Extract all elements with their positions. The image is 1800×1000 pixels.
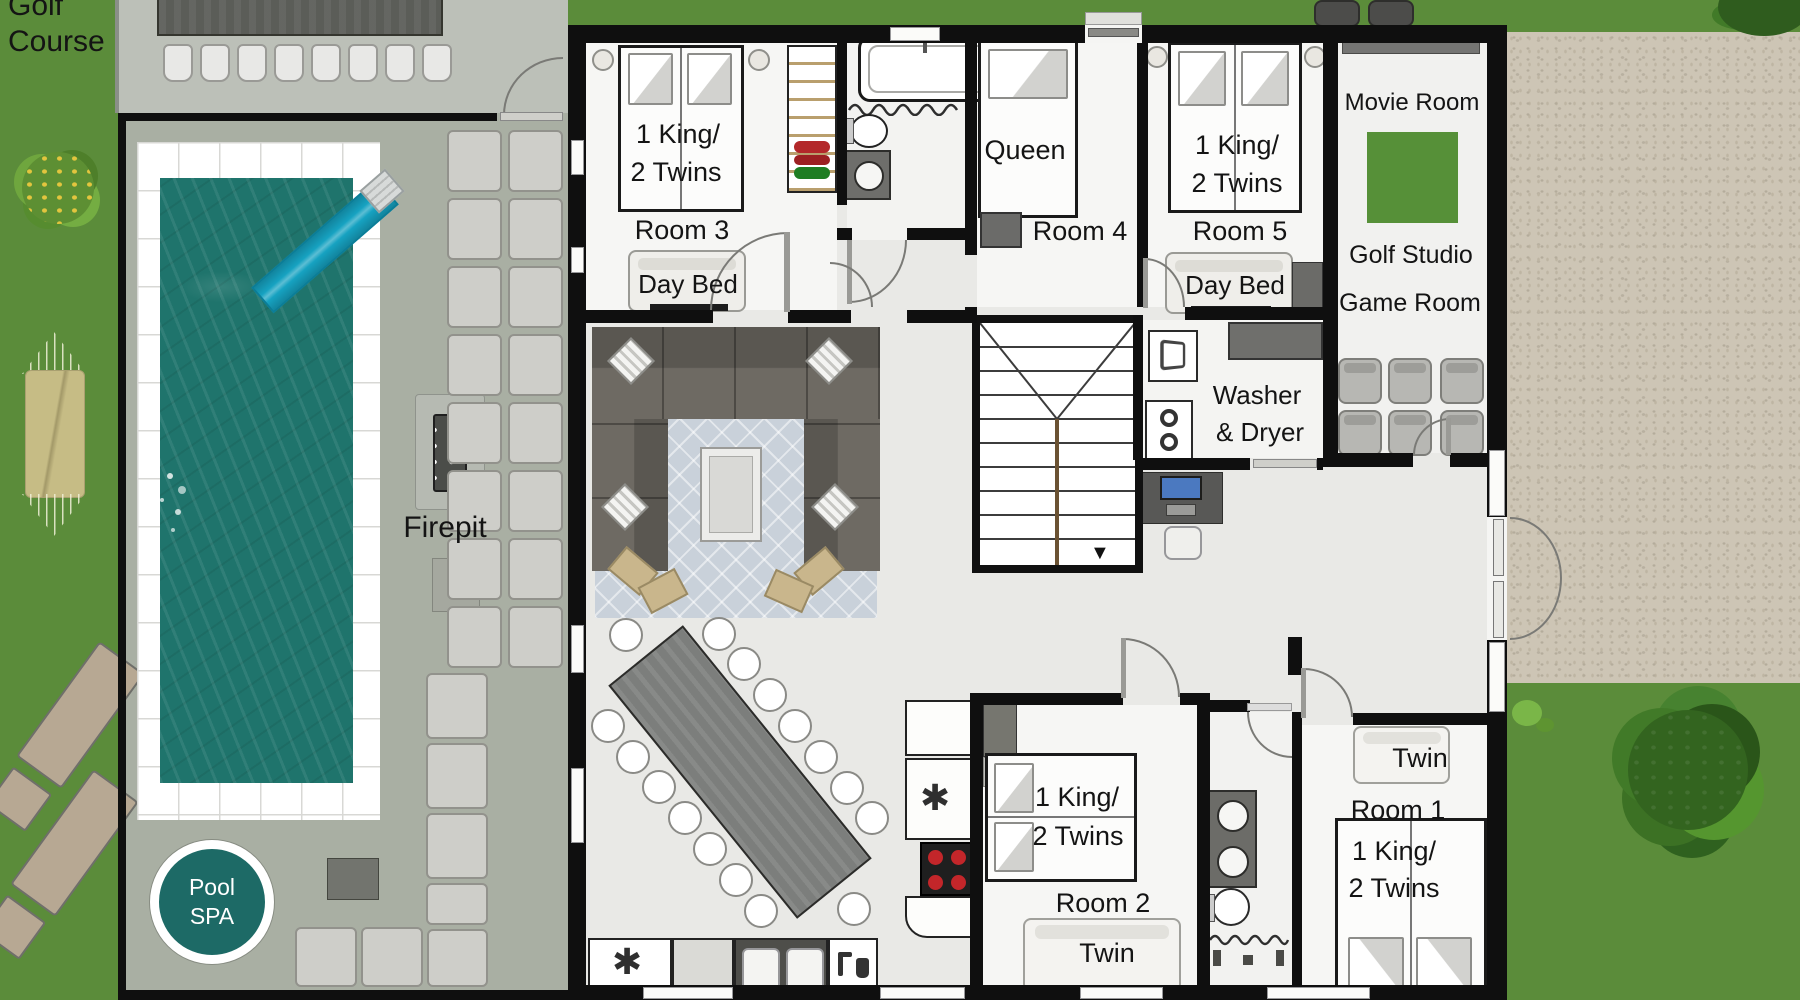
pillow (1348, 937, 1404, 989)
room3-name-label: Room 3 (635, 216, 730, 244)
stove-burner (928, 875, 943, 890)
room5-side-table (1292, 262, 1323, 312)
hall-wall (586, 310, 713, 323)
outdoor-sofa-cushion (427, 929, 488, 987)
pillow (1178, 51, 1226, 106)
window (571, 140, 584, 175)
patio-chair (385, 44, 415, 82)
pool-spa-label-line2: SPA (190, 902, 234, 931)
room2-door (1121, 638, 1126, 698)
stove-burner (951, 850, 966, 865)
room2-bed-label-line2: 2 Twins (1032, 822, 1123, 850)
window (643, 987, 733, 999)
french-door-leaf (1493, 581, 1504, 638)
stairs-down-arrow-icon: ▼ (1090, 542, 1110, 565)
dining-chair (855, 801, 889, 835)
outdoor-sofa-cushion (361, 927, 423, 987)
desk-chair (1164, 526, 1202, 560)
room1-wall-top (1353, 713, 1487, 725)
closet-items-red (794, 155, 830, 165)
laundry-door (1253, 459, 1317, 468)
vent-hood-icon: ✱ (612, 944, 642, 980)
pillow (1416, 937, 1472, 989)
hall-wall (788, 310, 851, 323)
room2-wall-right (1197, 693, 1210, 985)
room5-bed-label-line1: 1 King/ (1195, 131, 1279, 159)
large-tree (1628, 710, 1748, 830)
hammock-net-bottom (22, 494, 86, 536)
coffee-table (700, 447, 762, 542)
room5-daybed-label: Day Bed (1185, 272, 1285, 299)
faucet-icon (838, 954, 843, 976)
dining-chair (719, 863, 753, 897)
bathroom1-wall-bottom (837, 228, 852, 240)
patio-chair (237, 44, 267, 82)
window (1080, 987, 1163, 999)
golf-simulator-green (1367, 132, 1458, 223)
window (1267, 987, 1370, 999)
pillow (628, 53, 673, 105)
dining-chair (642, 770, 676, 804)
media-room-wall-left (1323, 25, 1338, 465)
window (571, 768, 584, 843)
firepit-label: Firepit (403, 512, 486, 544)
toilet (850, 114, 888, 148)
room2-wall-top (970, 693, 1123, 705)
pool-spa-badge: Pool SPA (150, 840, 274, 964)
patio-door (500, 112, 563, 121)
outdoor-coffee-table (327, 858, 379, 900)
kitchen-stove (920, 842, 972, 896)
bathroom1-wall-right (965, 43, 977, 255)
theater-seat (1440, 358, 1484, 404)
bathroom2-wall-top (1210, 700, 1250, 712)
golf-studio-label: Golf Studio (1349, 242, 1473, 268)
window (571, 625, 584, 673)
dining-chair (727, 647, 761, 681)
patio-chair (348, 44, 378, 82)
theater-seat (1338, 358, 1382, 404)
outdoor-sofa-back (508, 334, 563, 396)
room4-bed (978, 40, 1078, 218)
patio-edge-line (115, 0, 119, 113)
theater-seat (1388, 358, 1432, 404)
theater-seat (1338, 410, 1382, 456)
floor-plan: Pool SPA (0, 0, 1800, 1000)
laundry-wall-bottom (1317, 458, 1323, 470)
golf-cart-seat (1368, 0, 1414, 27)
kitchen-upper-cabinet (905, 700, 972, 756)
dining-chair (609, 618, 643, 652)
outdoor-sofa-cushion (447, 334, 502, 396)
room5-wall-bottom (1185, 307, 1323, 320)
laundry-counter (1228, 322, 1323, 360)
stove-burner (951, 875, 966, 890)
room4-bed-label: Queen (984, 136, 1065, 164)
outdoor-sofa-cushion (426, 673, 488, 739)
kitchen-room2-wall (970, 693, 983, 985)
patio-chair (200, 44, 230, 82)
dining-chair (830, 771, 864, 805)
golf-cart-seat (1314, 0, 1360, 27)
spa-jets-bubbles (152, 462, 160, 470)
outdoor-sofa-back (508, 606, 563, 668)
stove-burner (928, 850, 943, 865)
closet-items-red (794, 141, 830, 153)
front-step (1085, 12, 1142, 25)
golf-course-label-line1: Golf (8, 0, 63, 22)
closet-items-green (794, 167, 830, 179)
shower-head-icon (1213, 950, 1221, 966)
golf-course-label-line2: Course (8, 26, 105, 58)
room3-bed-label-line2: 2 Twins (630, 158, 721, 186)
room5-bed-label-line2: 2 Twins (1191, 169, 1282, 197)
room4-name-label: Room 4 (1033, 217, 1128, 245)
laundry-wall-bottom (1135, 458, 1250, 470)
dining-chair (616, 740, 650, 774)
pillow (687, 53, 732, 105)
outdoor-sofa-back (508, 130, 563, 192)
room5-name-label: Room 5 (1193, 217, 1288, 245)
dining-chair (804, 740, 838, 774)
room2-name-label: Room 2 (1056, 889, 1151, 917)
room1-twin-label: Twin (1392, 744, 1448, 772)
room2-bed (985, 753, 1137, 882)
dining-chair (778, 709, 812, 743)
pillow (994, 822, 1034, 872)
soap-jar-icon (856, 958, 869, 978)
laundry-label-line1: Washer (1213, 382, 1302, 409)
window (571, 247, 584, 273)
patio-chair (274, 44, 304, 82)
dining-chair (744, 894, 778, 928)
washer (1148, 330, 1198, 382)
window (1489, 450, 1505, 516)
hammock (8, 330, 100, 535)
dining-chair (668, 801, 702, 835)
outdoor-sofa-cushion (295, 927, 357, 987)
bathroom1-wall-right (965, 307, 977, 323)
computer-monitor (1160, 476, 1202, 500)
pillow (994, 763, 1034, 813)
room4-nightstand (980, 212, 1022, 248)
faucet-icon (838, 952, 852, 957)
house-wall-top (568, 25, 1507, 43)
stairs-laundry-wall (1133, 315, 1143, 460)
outdoor-sofa-cushion (447, 198, 502, 260)
hall-wall (907, 310, 965, 323)
outdoor-sofa-cushion (447, 606, 502, 668)
nightstand (1146, 46, 1168, 68)
window (880, 987, 965, 999)
outdoor-dining-table (157, 0, 443, 36)
staircase (972, 315, 1143, 573)
laundry-label-line2: & Dryer (1216, 419, 1304, 446)
room3-bed-label-line1: 1 King/ (636, 120, 720, 148)
room2-closet (983, 703, 1017, 757)
bathroom2-door (1247, 703, 1292, 711)
room3-closet-rack (787, 45, 837, 193)
shower-control-icon (1243, 955, 1253, 965)
outdoor-sofa-cushion (447, 130, 502, 192)
room2-twin-label: Twin (1079, 939, 1135, 967)
outdoor-sofa-back (508, 470, 563, 532)
toilet-tank (846, 118, 854, 144)
front-door (1088, 28, 1139, 37)
room3-door (784, 232, 790, 312)
dining-chair (591, 709, 625, 743)
deck-wall-left (118, 113, 126, 1000)
outdoor-sofa-cushion (447, 266, 502, 328)
room1-name-label: Room 1 (1351, 796, 1446, 824)
dryer (1145, 400, 1193, 460)
bathroom1-vanity (845, 150, 891, 200)
nightstand (748, 49, 770, 71)
dining-chair (693, 832, 727, 866)
outdoor-sofa-back (508, 266, 563, 328)
desk-keyboard (1166, 504, 1196, 516)
hall-room1-stub (1288, 637, 1302, 675)
room1-door (1301, 668, 1306, 718)
dining-chair (837, 892, 871, 926)
shower-head-icon (1276, 950, 1284, 966)
fridge-star-icon: ✱ (920, 780, 950, 816)
room1-bed-label-line2: 2 Twins (1348, 874, 1439, 902)
patio-chair (311, 44, 341, 82)
media-room-door (1446, 418, 1451, 455)
deck-wall-bottom (118, 990, 568, 1000)
french-door-leaf (1493, 519, 1504, 576)
outdoor-sofa-cushion (426, 813, 488, 879)
media-room-name-label: Movie Room (1345, 90, 1480, 115)
deck-wall-top (118, 113, 497, 121)
game-room-label: Game Room (1339, 290, 1481, 316)
small-tree (22, 152, 94, 224)
patio-chair (422, 44, 452, 82)
pillow (1241, 51, 1289, 106)
pillow (988, 49, 1068, 99)
toilet (1212, 888, 1250, 926)
outdoor-sofa-back (508, 538, 563, 600)
dining-chair (702, 617, 736, 651)
hammock-cloth (25, 370, 85, 498)
room3-closet-wall (837, 43, 847, 205)
small-bush (1512, 700, 1542, 726)
media-room-wall-bottom (1323, 453, 1413, 467)
outdoor-sofa-back (508, 402, 563, 464)
bathroom1-wall-bottom (907, 228, 965, 240)
bathroom2-vanity (1207, 790, 1257, 888)
hammock-net-top (22, 332, 86, 374)
kitchen-corner-counter (905, 896, 972, 938)
outdoor-sofa-back (508, 198, 563, 260)
room1-bed-label-line1: 1 King/ (1352, 837, 1436, 865)
outdoor-sofa-cushion (426, 883, 488, 925)
room2-bed-label-line1: 1 King/ (1035, 783, 1119, 811)
outdoor-sofa-cushion (447, 402, 502, 464)
dining-chair (753, 678, 787, 712)
nightstand (592, 49, 614, 71)
room5-door (1143, 258, 1148, 308)
patio-chair (163, 44, 193, 82)
outdoor-sofa-cushion (426, 743, 488, 809)
window (890, 27, 940, 41)
bathroom2-wall-right (1292, 712, 1302, 985)
window (1489, 642, 1505, 712)
outdoor-sofa-cushion (447, 538, 502, 600)
room3-daybed-label: Day Bed (638, 271, 738, 298)
shower-squiggle (1208, 930, 1292, 946)
pool-spa-label-line1: Pool (189, 873, 235, 902)
